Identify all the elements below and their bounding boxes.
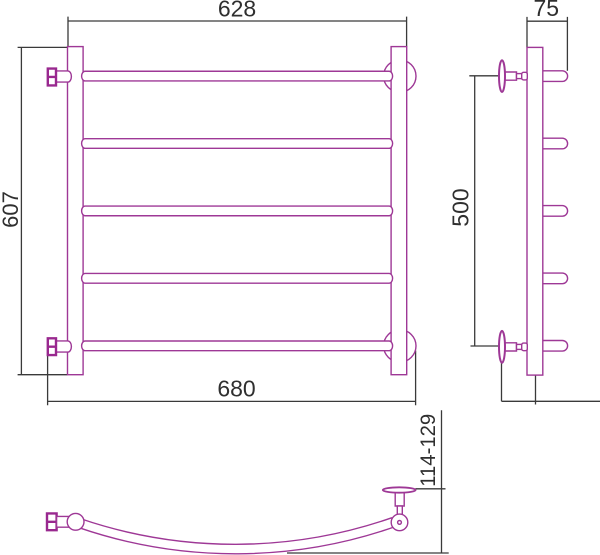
svg-text:607: 607 xyxy=(0,191,23,228)
svg-text:75: 75 xyxy=(534,0,560,21)
svg-text:628: 628 xyxy=(218,0,256,22)
svg-text:680: 680 xyxy=(217,376,255,402)
svg-text:114-129: 114-129 xyxy=(417,414,440,487)
svg-text:500: 500 xyxy=(448,188,474,226)
